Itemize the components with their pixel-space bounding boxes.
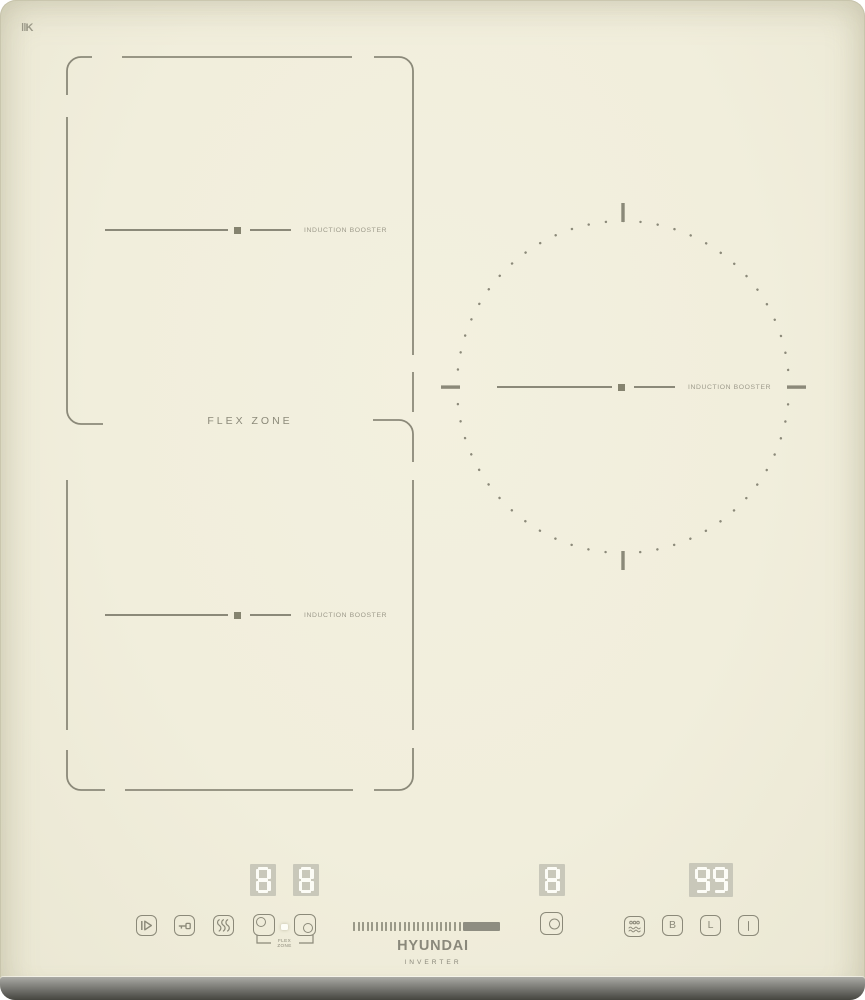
cooking-zones-graphic [0, 0, 865, 1000]
boil-button[interactable] [624, 916, 645, 937]
front-trim [0, 977, 865, 1000]
flex-zone-top-outline [67, 57, 413, 424]
booster-square-dot [618, 384, 625, 391]
booster-label: INDUCTION BOOSTER [304, 612, 387, 619]
booster-square-dot [234, 612, 241, 619]
booster-b-button[interactable]: B [662, 915, 683, 936]
power-i-button[interactable] [738, 915, 759, 936]
booster-indicator-bottom: INDUCTION BOOSTER [105, 611, 387, 619]
flex-link-indicator [281, 924, 288, 931]
brand-logo: HYUNDAI [383, 938, 483, 954]
select-right-zone-button[interactable] [540, 912, 563, 935]
brand-subtitle: INVERTER [383, 959, 483, 966]
pause-button[interactable] [136, 915, 157, 936]
zone-circle-right-icon [549, 918, 560, 929]
display-right-zone [539, 864, 565, 896]
booster-label: INDUCTION BOOSTER [304, 227, 387, 234]
flex-zone-label: FLEX ZONE [185, 415, 315, 427]
booster-indicator-right: INDUCTION BOOSTER [497, 383, 771, 391]
booster-line-short [250, 614, 291, 616]
flex-zone-bottom-outline [67, 420, 413, 790]
power-slider[interactable] [353, 922, 463, 931]
booster-line [105, 229, 228, 231]
booster-square-dot [234, 227, 241, 234]
booster-b-label: B [669, 920, 676, 931]
power-i-icon [748, 921, 750, 931]
key-lock-button[interactable] [174, 915, 195, 936]
booster-line-short [634, 386, 675, 388]
lock-l-label: L [708, 920, 714, 931]
zone-circle-top-left-icon [256, 917, 266, 927]
pause-icon [140, 920, 153, 931]
lock-l-button[interactable]: L [700, 915, 721, 936]
booster-label: INDUCTION BOOSTER [688, 384, 771, 391]
keep-warm-icon [217, 919, 230, 932]
boil-icon [628, 920, 641, 933]
flex-zone-small-label: FLEX ZONE [271, 938, 298, 949]
keep-warm-button[interactable] [213, 915, 234, 936]
display-timer [689, 863, 733, 897]
booster-line [497, 386, 612, 388]
display-flex-bottom [293, 864, 319, 896]
display-flex-top [250, 864, 276, 896]
power-slider-fill[interactable] [463, 922, 500, 931]
booster-line-short [250, 229, 291, 231]
key-lock-icon [178, 921, 191, 931]
booster-indicator-top: INDUCTION BOOSTER [105, 226, 387, 234]
zone-circle-bottom-right-icon [303, 923, 313, 933]
induction-hob: ‖K FLEX ZONE INDUCT [0, 0, 865, 1000]
booster-line [105, 614, 228, 616]
